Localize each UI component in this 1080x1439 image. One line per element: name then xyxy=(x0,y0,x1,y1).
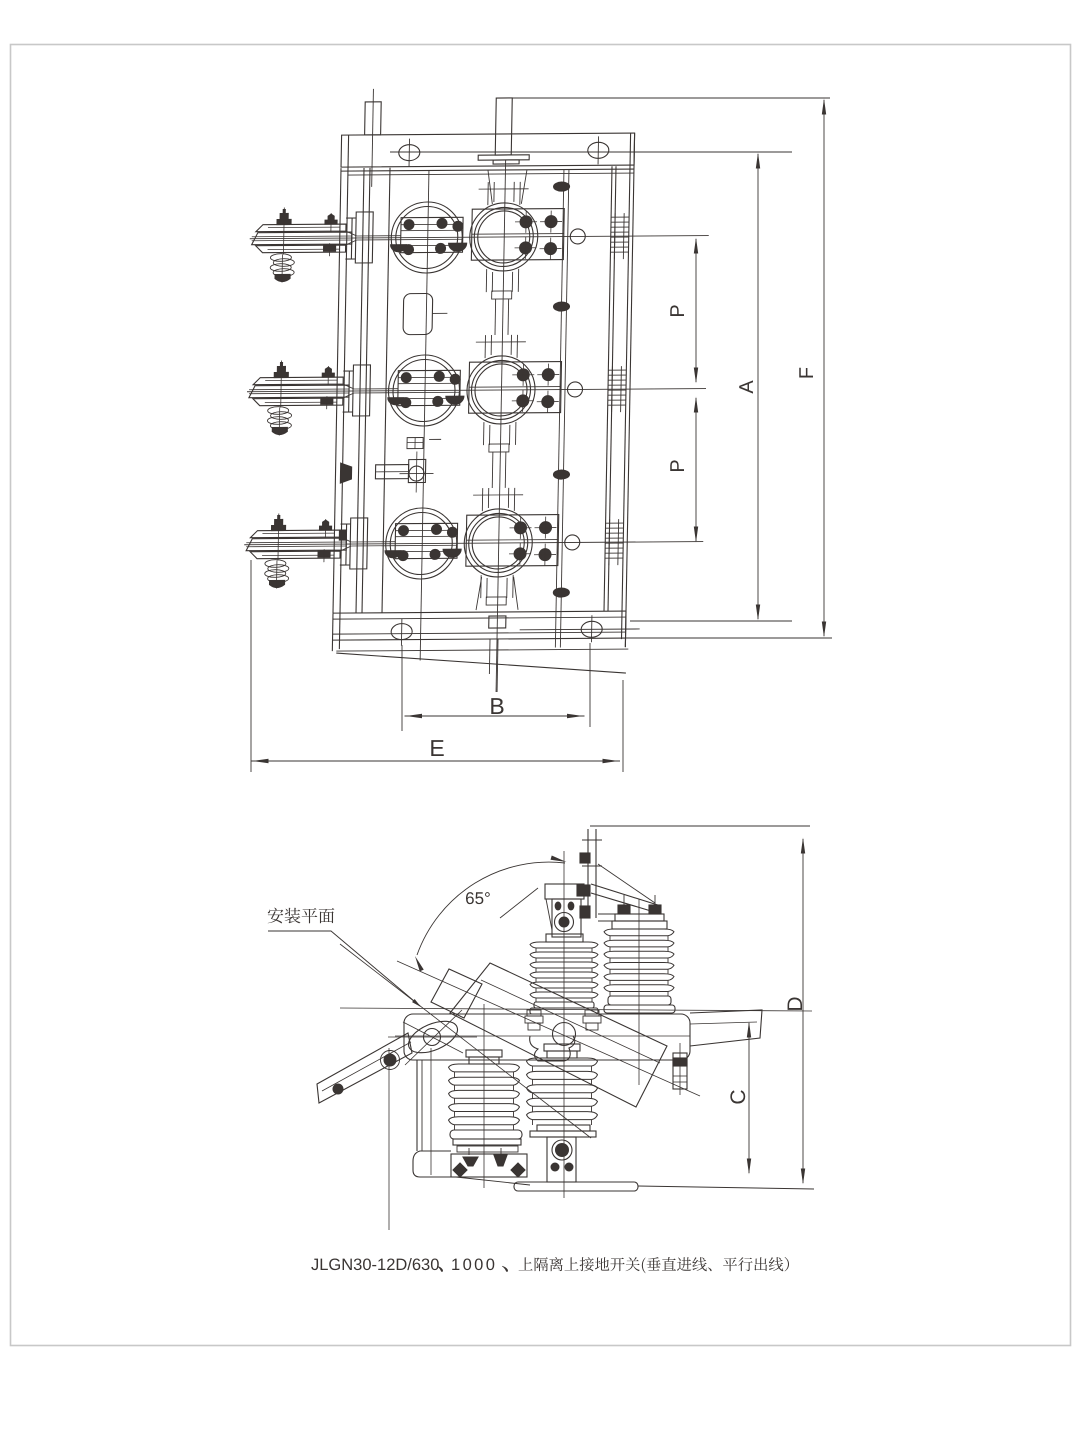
svg-text:JLGN30-12D/630: JLGN30-12D/630 xyxy=(311,1256,439,1274)
svg-text:A: A xyxy=(736,380,758,394)
svg-text:B: B xyxy=(489,693,504,719)
svg-text:P: P xyxy=(667,459,689,472)
svg-text:1000: 1000 xyxy=(451,1256,497,1274)
svg-text:C: C xyxy=(727,1089,750,1104)
svg-text:E: E xyxy=(429,735,444,761)
svg-text:65°: 65° xyxy=(465,889,491,908)
svg-text:P: P xyxy=(667,304,689,317)
svg-text:D: D xyxy=(784,996,807,1011)
svg-text:F: F xyxy=(796,367,818,379)
